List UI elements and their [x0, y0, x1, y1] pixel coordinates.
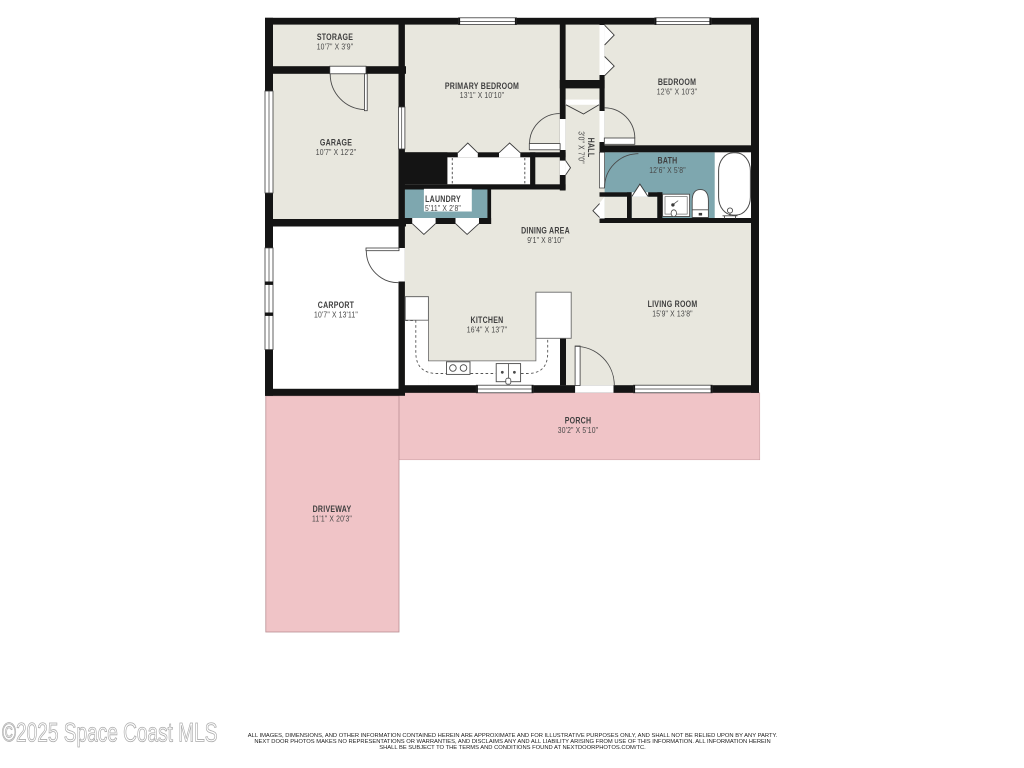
svg-text:30'2" X 5'10": 30'2" X 5'10" [558, 425, 599, 435]
svg-text:13'1" X 10'10": 13'1" X 10'10" [460, 90, 504, 100]
svg-text:12'6" X 5'8": 12'6" X 5'8" [649, 165, 686, 175]
svg-text:10'7" X 3'9": 10'7" X 3'9" [317, 42, 354, 52]
svg-text:11'1" X 20'3": 11'1" X 20'3" [312, 514, 352, 524]
svg-text:10'7" X 13'11": 10'7" X 13'11" [314, 310, 358, 320]
svg-text:3'0" X 7'0": 3'0" X 7'0" [576, 131, 586, 164]
svg-text:10'7" X 12'2": 10'7" X 12'2" [316, 147, 357, 157]
svg-text:5'11" X 2'8": 5'11" X 2'8" [425, 203, 461, 213]
svg-text:9'1" X 8'10": 9'1" X 8'10" [527, 235, 564, 245]
svg-text:SHALL BE SUBJECT TO THE TERMS: SHALL BE SUBJECT TO THE TERMS AND CONDIT… [379, 745, 646, 751]
svg-text:12'6" X 10'3": 12'6" X 10'3" [657, 87, 698, 97]
svg-text:©2025 Space Coast MLS: ©2025 Space Coast MLS [2, 717, 217, 747]
svg-text:16'4" X 13'7": 16'4" X 13'7" [467, 325, 508, 335]
svg-text:15'9" X 13'8": 15'9" X 13'8" [652, 309, 693, 319]
